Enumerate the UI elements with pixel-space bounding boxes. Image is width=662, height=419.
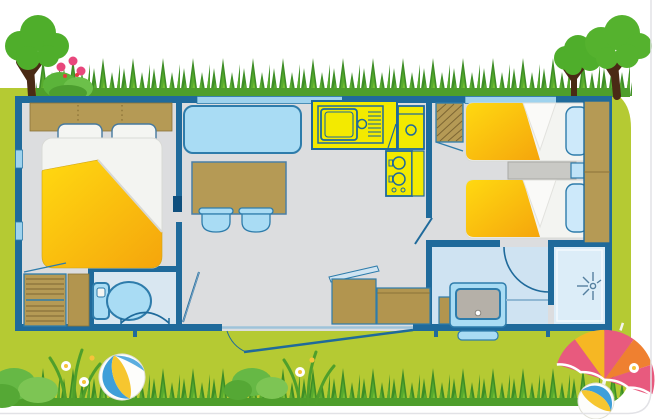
storage-chest	[377, 288, 430, 324]
bath-mat	[68, 274, 89, 326]
side-counter	[412, 151, 424, 196]
sofa-bench	[184, 106, 301, 153]
daisy-flower	[629, 363, 639, 373]
sink-counter	[312, 101, 397, 149]
wall-shower-left	[548, 247, 554, 305]
wall-bedroom1-living	[176, 103, 182, 196]
nightstand	[508, 162, 584, 179]
single-bed-top	[466, 103, 588, 161]
sliding-door-marker	[173, 196, 182, 212]
upper-cabinet	[398, 106, 424, 149]
chair-2	[239, 208, 273, 232]
wall-bedroom1-living-lower	[176, 222, 182, 324]
window-left-wall-lower	[16, 222, 23, 240]
entry-step	[458, 331, 498, 340]
double-bed	[42, 138, 162, 268]
floorplan-scene	[0, 0, 662, 419]
washbasin-drain	[475, 310, 481, 316]
sink-basin	[321, 109, 357, 140]
floorplan	[15, 96, 612, 352]
wall-kitchen-twinroom	[426, 103, 432, 218]
toilet-button	[97, 288, 105, 297]
single-bed-bottom	[466, 180, 588, 238]
wall-twinroom-bathroom-a	[432, 240, 500, 247]
tall-wardrobe	[584, 101, 610, 243]
stove-two-burners	[386, 151, 412, 196]
drainer	[368, 112, 381, 136]
top-grass-hedge	[36, 52, 632, 97]
toilet-bowl	[107, 282, 151, 320]
dining-table	[192, 162, 286, 214]
window-left-wall-upper	[16, 150, 23, 168]
illustration-canvas	[0, 0, 662, 419]
window-twin-bedroom	[465, 97, 557, 104]
faucet	[358, 120, 367, 129]
washbasin	[450, 283, 506, 327]
chair-1	[199, 208, 233, 232]
